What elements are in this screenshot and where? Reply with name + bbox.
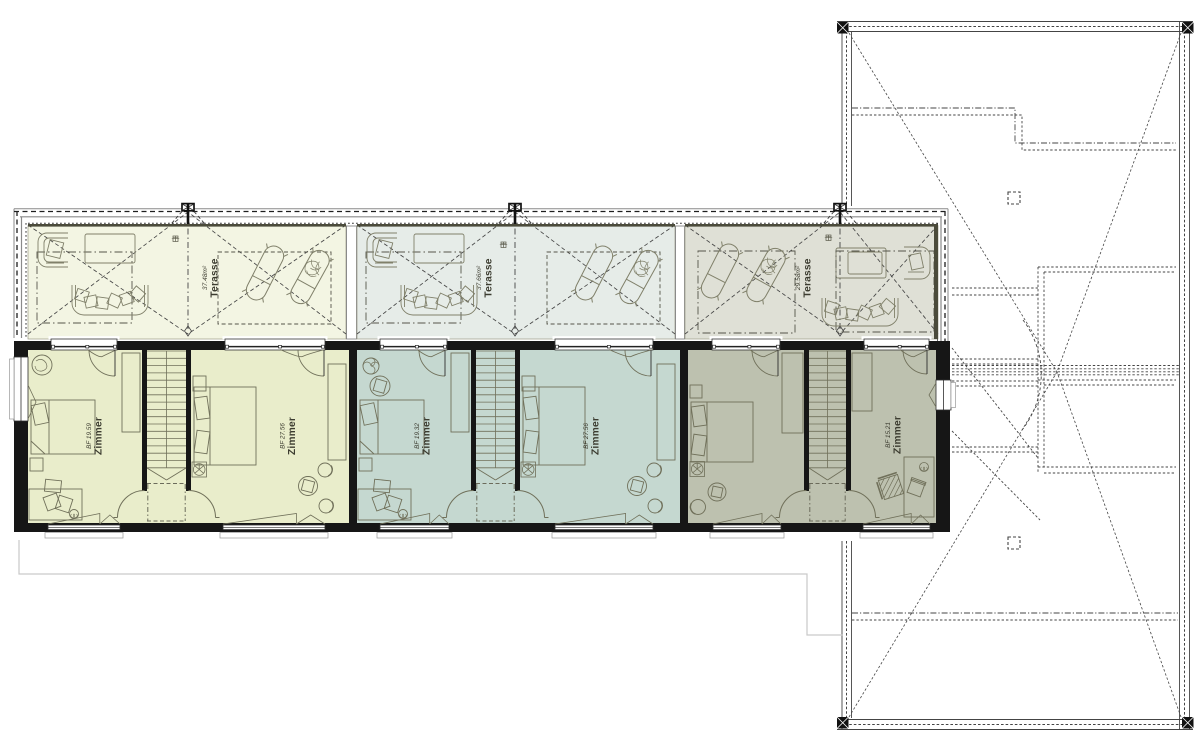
svg-text:Zimmer: Zimmer (591, 417, 602, 455)
svg-text:Zimmer: Zimmer (893, 416, 904, 454)
svg-text:Terasse: Terasse (484, 258, 495, 297)
svg-text:Zimmer: Zimmer (287, 417, 298, 455)
svg-text:BF 27.56: BF 27.56 (280, 423, 287, 449)
svg-text:Zimmer: Zimmer (422, 417, 433, 455)
svg-text:29.58m²: 29.58m² (795, 265, 802, 291)
svg-text:BF 19.32: BF 19.32 (414, 423, 421, 449)
svg-text:BF 19.59: BF 19.59 (86, 423, 93, 449)
svg-text:BF 27.56: BF 27.56 (583, 423, 590, 449)
svg-text:BF 15.21: BF 15.21 (885, 422, 892, 448)
svg-text:Zimmer: Zimmer (94, 417, 105, 455)
svg-text:Terasse: Terasse (210, 258, 221, 297)
svg-text:37.48m²: 37.48m² (202, 265, 209, 290)
svg-text:Terasse: Terasse (803, 258, 814, 297)
